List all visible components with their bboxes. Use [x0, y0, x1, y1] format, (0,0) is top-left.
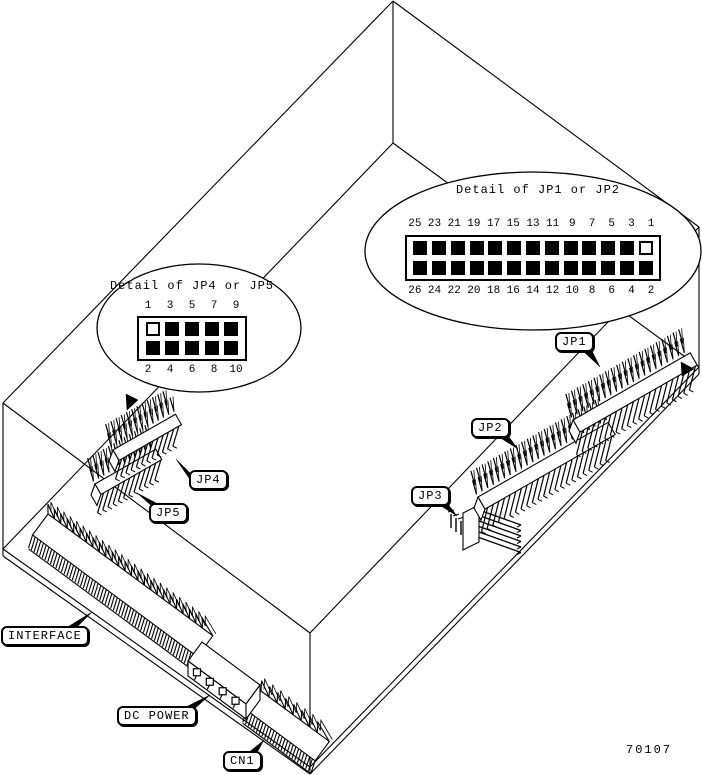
detail-jp4-jp5-pin-grid	[137, 316, 247, 361]
pin-number: 8	[203, 364, 225, 376]
pin-square	[413, 261, 427, 275]
pin-square	[470, 261, 484, 275]
pin-square	[620, 241, 634, 255]
detail-jp4-jp5-title: Detail of JP4 or JP5	[92, 279, 292, 293]
pin-square	[564, 261, 578, 275]
pin-square	[601, 241, 615, 255]
pin-number: 6	[181, 364, 203, 376]
pin-number: 9	[563, 218, 583, 230]
pin-square	[165, 341, 179, 355]
pin-square	[413, 241, 427, 255]
pin-square	[451, 261, 465, 275]
pin-square	[639, 261, 653, 275]
pin-square	[451, 241, 465, 255]
pin-number: 12	[543, 285, 563, 297]
pin-number: 26	[405, 285, 425, 297]
pin-square	[582, 241, 596, 255]
pin-number: 7	[582, 218, 602, 230]
pin-square	[507, 241, 521, 255]
pin-number: 22	[444, 285, 464, 297]
pin-number: 21	[444, 218, 464, 230]
pin-square-open	[146, 322, 160, 336]
callout-jp4: JP4	[189, 470, 228, 490]
pin-number: 3	[159, 300, 181, 312]
pin-square	[224, 341, 238, 355]
callout-jp2: JP2	[471, 418, 510, 438]
pin-number: 6	[602, 285, 622, 297]
pin-number: 16	[503, 285, 523, 297]
pin-number: 2	[641, 285, 661, 297]
pin-square	[205, 341, 219, 355]
detail-jp4-jp5-top-numbers: 13579	[137, 300, 247, 312]
pin-number: 20	[464, 285, 484, 297]
detail-jp1-jp2-pin-grid	[405, 235, 661, 281]
detail-jp1-jp2-bottom-numbers: 2624222018161412108642	[405, 285, 661, 297]
pin-square	[470, 241, 484, 255]
pin-number: 9	[225, 300, 247, 312]
pin-square	[146, 341, 160, 355]
pin-square	[432, 241, 446, 255]
detail-jp1-jp2-top-numbers: 252321191715131197531	[405, 218, 661, 230]
pin-square	[185, 341, 199, 355]
pin-square	[432, 261, 446, 275]
pin-number: 1	[641, 218, 661, 230]
pin-square	[545, 261, 559, 275]
pin-number: 5	[181, 300, 203, 312]
callout-jp1: JP1	[555, 332, 594, 352]
pin-square	[205, 322, 219, 336]
callout-jp3: JP3	[411, 486, 450, 506]
detail-jp1-jp2-title: Detail of JP1 or JP2	[408, 183, 668, 197]
pin-square	[526, 261, 540, 275]
pin-square	[545, 241, 559, 255]
pin-number: 4	[159, 364, 181, 376]
pin-number: 19	[464, 218, 484, 230]
pin-number: 4	[622, 285, 642, 297]
pin-square	[582, 261, 596, 275]
pin-number: 5	[602, 218, 622, 230]
pin-number: 3	[622, 218, 642, 230]
pin-square	[488, 241, 502, 255]
pin-square	[507, 261, 521, 275]
callout-dc-power: DC POWER	[117, 706, 197, 726]
board-outline	[3, 1, 699, 774]
pin-number: 2	[137, 364, 159, 376]
pin-number: 25	[405, 218, 425, 230]
pin-square	[185, 322, 199, 336]
figure-number: 70107	[626, 743, 672, 757]
callout-cn1: CN1	[223, 751, 262, 771]
pin-square	[620, 261, 634, 275]
board-diagram	[0, 0, 702, 775]
pin-number: 18	[484, 285, 504, 297]
pin-number: 7	[203, 300, 225, 312]
pin-number: 15	[503, 218, 523, 230]
pin-number: 10	[225, 364, 247, 376]
pin-number: 8	[582, 285, 602, 297]
pin-square	[564, 241, 578, 255]
pin-square	[601, 261, 615, 275]
pin-number: 13	[523, 218, 543, 230]
pin-number: 14	[523, 285, 543, 297]
figure-canvas: Detail of JP1 or JP2 2523211917151311975…	[0, 0, 702, 775]
pin-number: 1	[137, 300, 159, 312]
pin-number: 24	[425, 285, 445, 297]
pin-square-open	[639, 241, 653, 255]
callout-jp5: JP5	[149, 503, 188, 523]
pin-square	[526, 241, 540, 255]
pin-square	[488, 261, 502, 275]
callout-interface: INTERFACE	[1, 626, 89, 646]
pin-number: 17	[484, 218, 504, 230]
pin-number: 11	[543, 218, 563, 230]
detail-jp4-jp5-bottom-numbers: 246810	[137, 364, 247, 376]
dc-power-connector	[188, 642, 260, 719]
pin-square	[224, 322, 238, 336]
pin-square	[165, 322, 179, 336]
pin-number: 23	[425, 218, 445, 230]
pin-number: 10	[563, 285, 583, 297]
